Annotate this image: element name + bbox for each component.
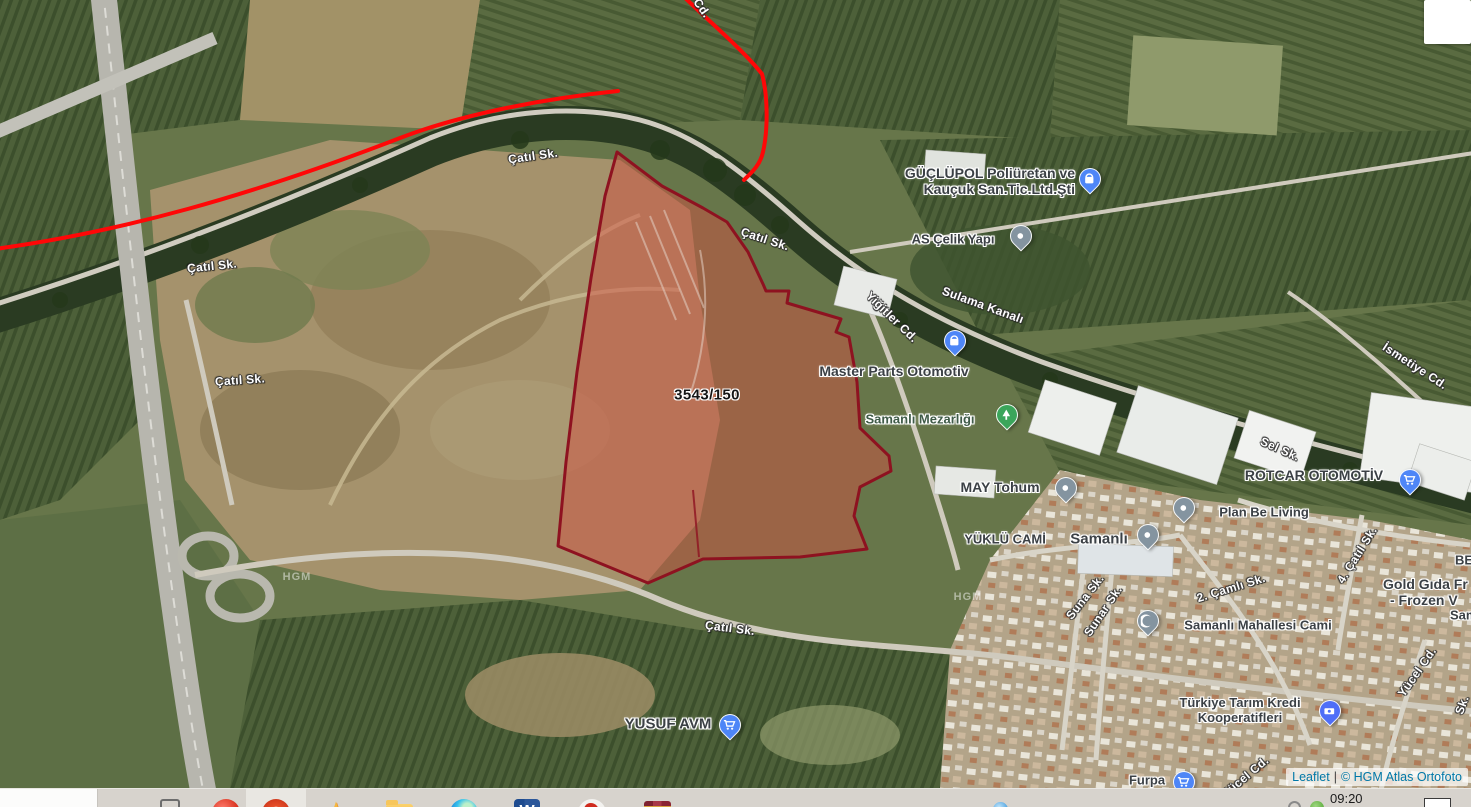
poi-label-may-tohum: MAY Tohum — [960, 479, 1039, 495]
taskbar-left-window-fragment — [0, 789, 98, 807]
poi-label-plan-be-living: Plan Be Living — [1219, 505, 1309, 520]
poi-label-master-parts: Master Parts Otomotiv — [819, 363, 968, 379]
hgm-watermark: HGM — [954, 591, 983, 603]
attribution-bar: Leaflet|© HGM Atlas Ortofoto — [1286, 768, 1468, 786]
screen: Çatıl Sk. Çatıl Sk. Çatıl Sk. Çatıl Sk. … — [0, 0, 1471, 807]
attribution-separator: | — [1334, 770, 1337, 784]
map-viewport[interactable]: Çatıl Sk. Çatıl Sk. Çatıl Sk. Çatıl Sk. … — [0, 0, 1471, 788]
word-icon[interactable] — [514, 799, 544, 807]
map-app-icon[interactable] — [993, 802, 1023, 807]
poi-label-yuklu-cami: YÜKLÜ CAMİ — [964, 532, 1046, 547]
taskbar: 09:20 — [0, 788, 1471, 807]
poi-label-mezarlik: Samanlı Mezarlığı — [865, 412, 974, 427]
browser-orange-active-icon[interactable] — [262, 799, 292, 807]
task-view-icon[interactable] — [160, 799, 190, 807]
taskbar-clock[interactable]: 09:20 — [1330, 791, 1363, 806]
poi-label-partial-be: BE — [1455, 553, 1471, 568]
browser-red-icon[interactable] — [212, 799, 242, 807]
poi-label-mahallesi-cami: Samanlı Mahallesi Cami — [1184, 618, 1331, 633]
poi-label-tarim-kredi: Türkiye Tarım Kredi Kooperatifleri — [1179, 695, 1300, 725]
provider-link[interactable]: © HGM Atlas Ortofoto — [1341, 770, 1462, 784]
hgm-watermark: HGM — [283, 571, 312, 583]
locality-label-samanli: Samanlı — [1070, 531, 1128, 548]
poi-label-furpa: Furpa — [1129, 773, 1165, 788]
parcel-number-label: 3543/150 — [674, 387, 740, 404]
paint-icon[interactable] — [578, 799, 608, 807]
poi-label-partial-sam: Sam — [1450, 608, 1471, 623]
poi-label-guclupol: GÜÇLÜPOL Poliüretan ve Kauçuk San.Tic.Lt… — [905, 165, 1075, 197]
popup-fragment — [1424, 0, 1471, 44]
file-explorer-icon[interactable] — [386, 799, 416, 807]
poi-label-rotcar: ROTCAR OTOMOTİV — [1245, 467, 1383, 483]
show-hidden-icons-box[interactable] — [1424, 798, 1451, 807]
leaflet-link[interactable]: Leaflet — [1292, 770, 1330, 784]
poi-label-yusuf-avm: YUSUF AVM — [625, 716, 712, 733]
poi-label-gold-gida: Gold Gıda Fr - Frozen V — [1383, 576, 1468, 608]
edge-browser-icon[interactable] — [450, 799, 480, 807]
archive-books-icon[interactable] — [644, 799, 674, 807]
poi-label-as-celik: AS Çelik Yapı — [912, 232, 995, 247]
photos-star-icon[interactable] — [322, 799, 352, 807]
